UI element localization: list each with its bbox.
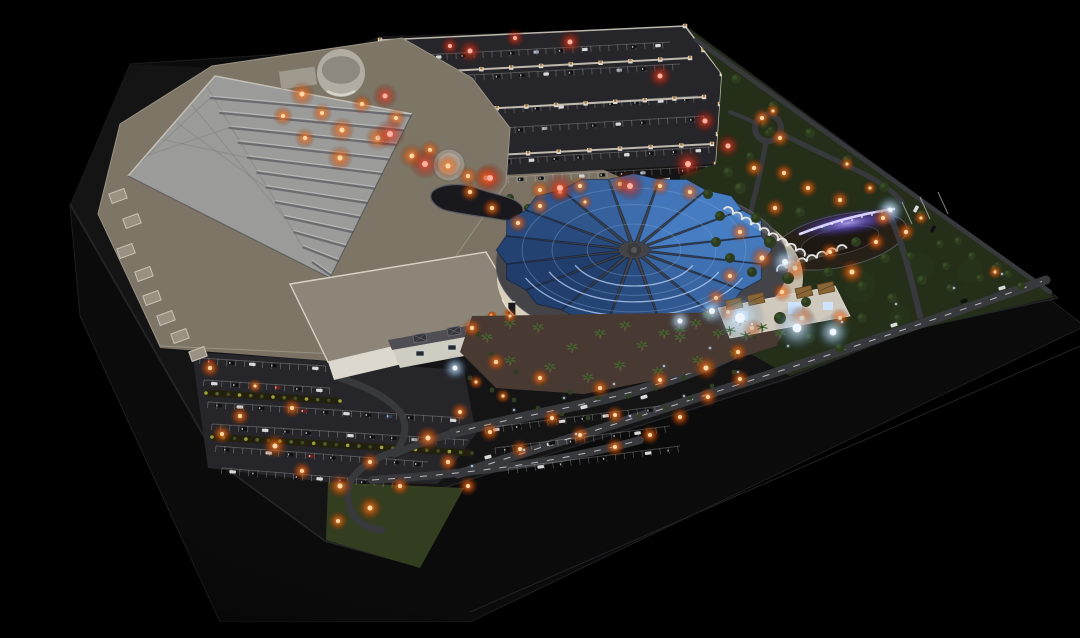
architectural-model-photo: Night-time illuminated architectural sca…: [40, 16, 1080, 622]
model-photo-canvas: [40, 16, 1080, 622]
model-photo-svg: [40, 16, 1080, 622]
